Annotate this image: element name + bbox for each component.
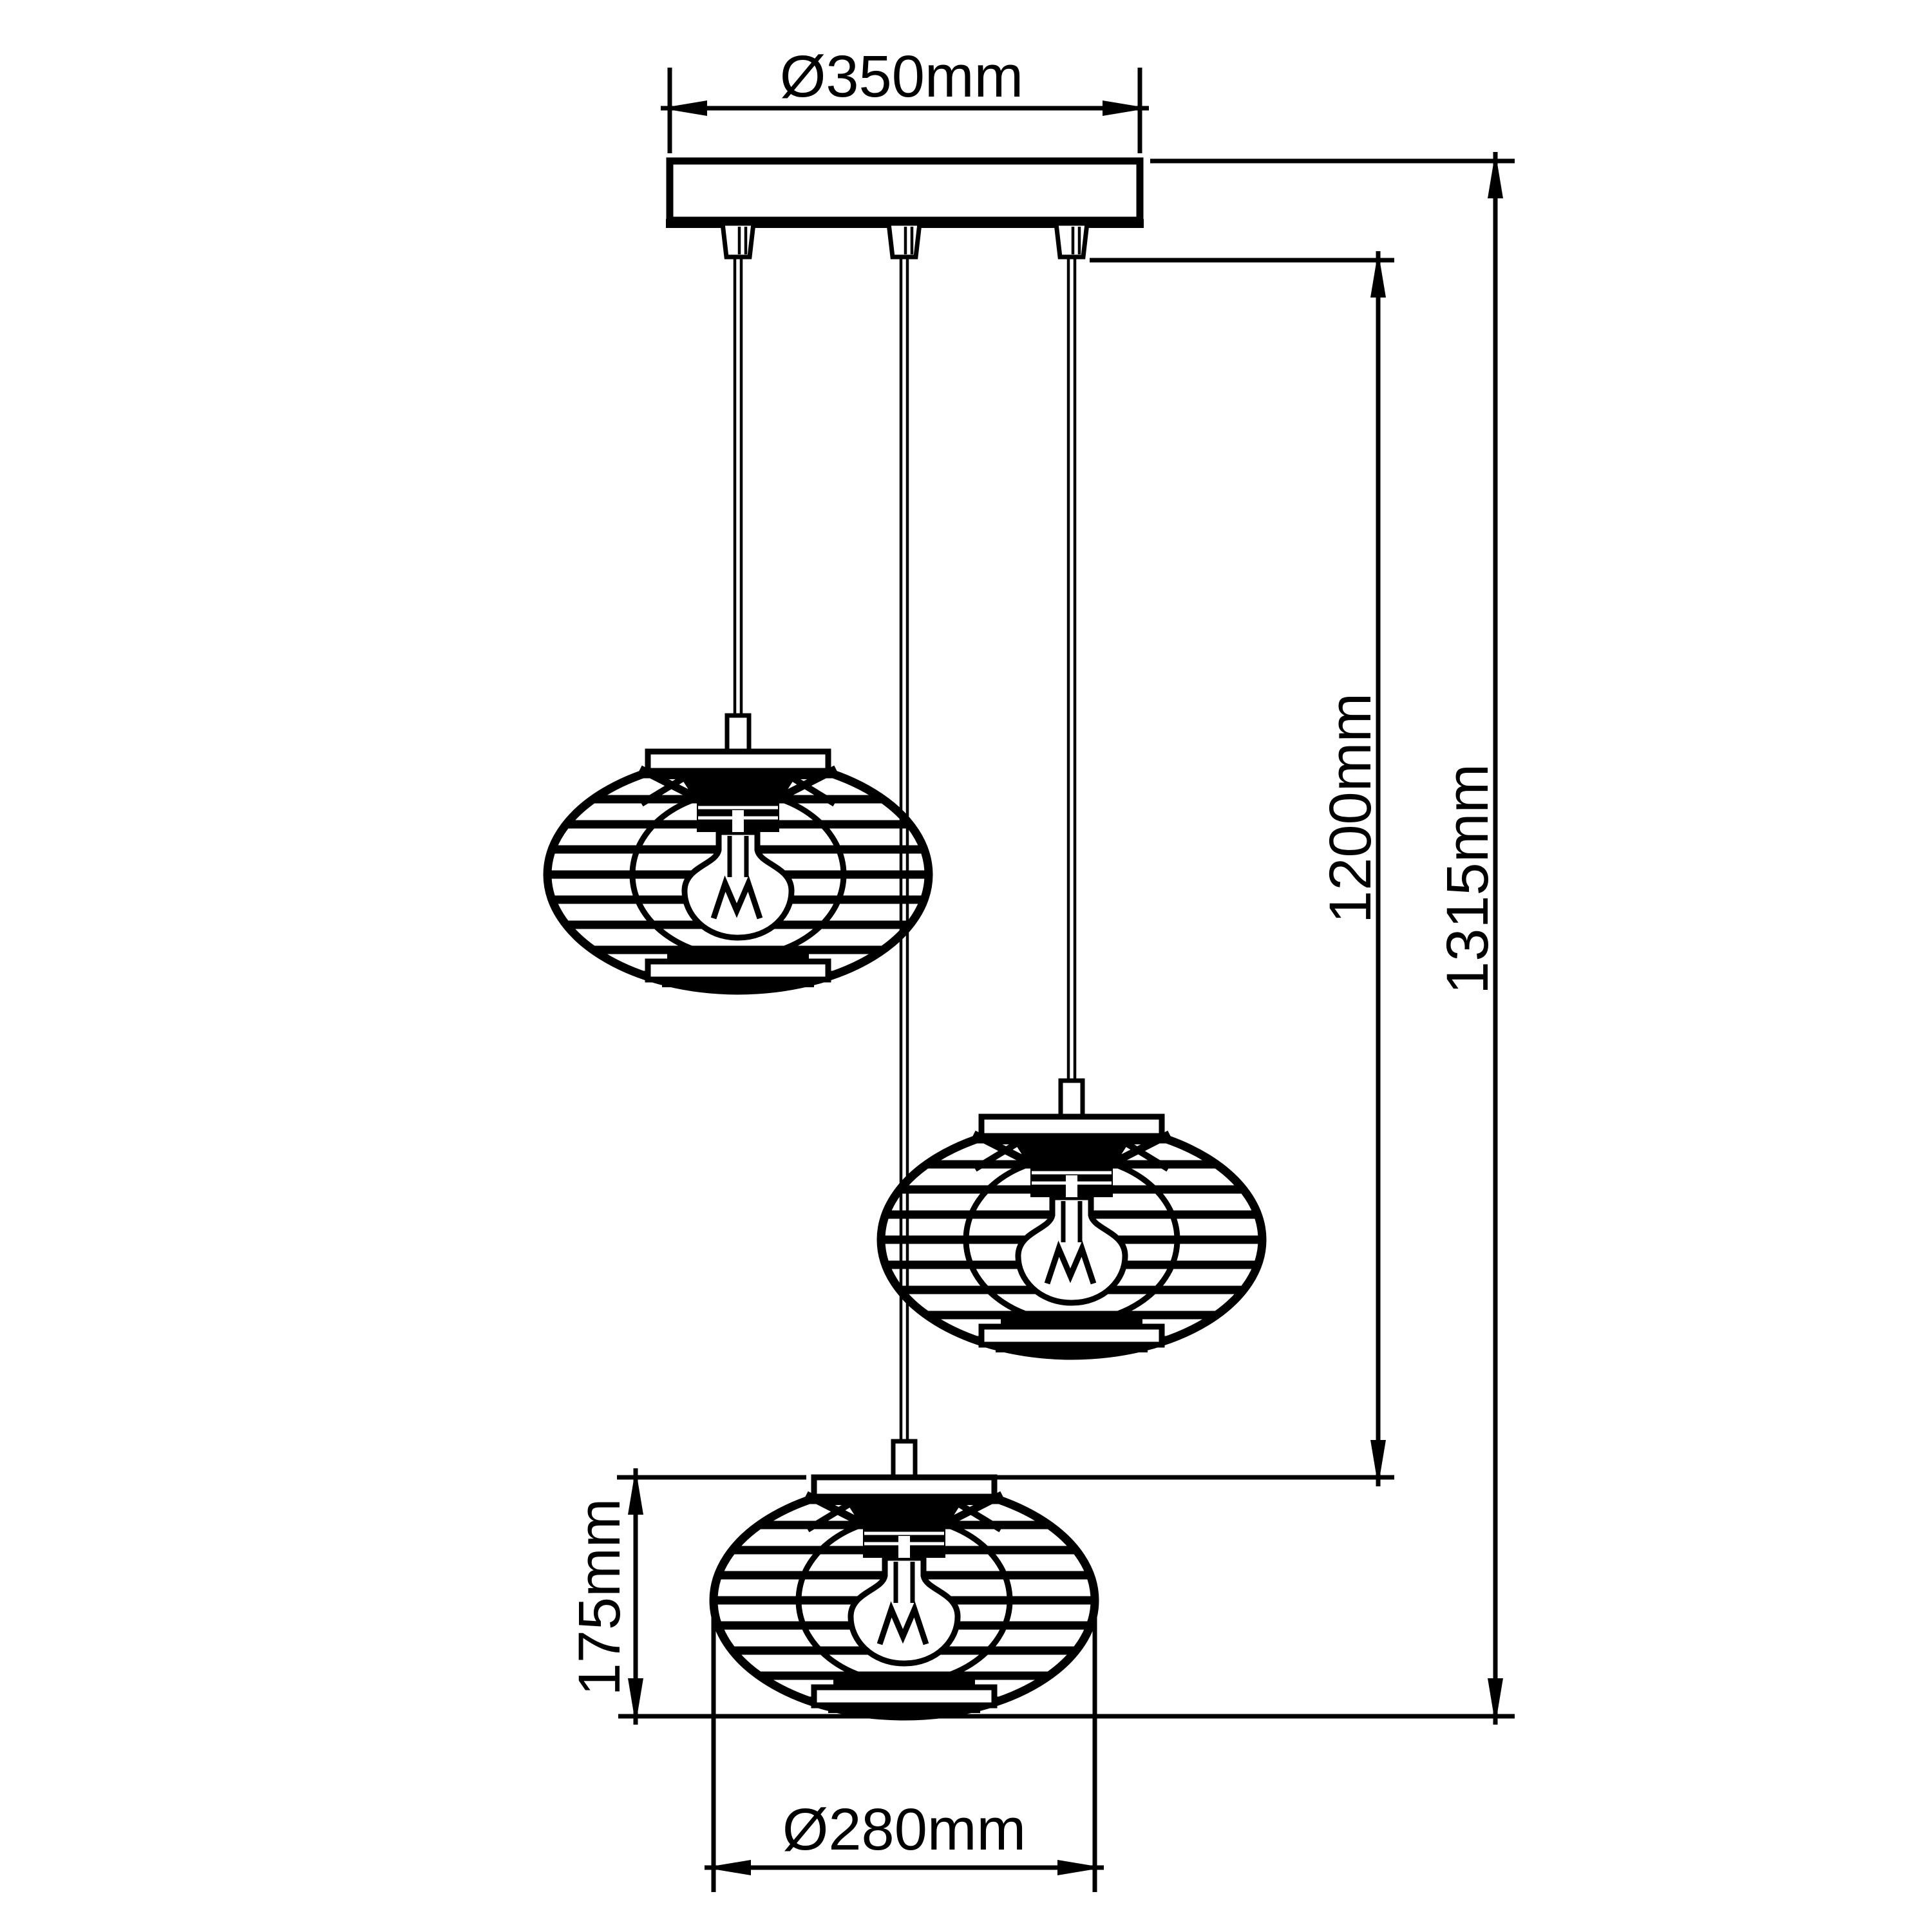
cord-right bbox=[1068, 256, 1075, 1088]
dimension-label-shade-diameter: Ø280mm bbox=[782, 1797, 1026, 1862]
cord-grip bbox=[889, 223, 920, 257]
pendant-shade-top-left bbox=[546, 715, 930, 990]
canopy-plate bbox=[670, 161, 1140, 220]
pendant-shade-bottom bbox=[712, 1441, 1096, 1716]
dimension-label-canopy-diameter: Ø350mm bbox=[780, 44, 1023, 109]
dimension-label-shade-height: 175mm bbox=[567, 1499, 632, 1696]
dimension-shade-height: 175mm bbox=[567, 1468, 643, 1725]
pendant-shade-middle-right bbox=[880, 1081, 1264, 1356]
dimension-label-drop-length: 1200mm bbox=[1318, 693, 1383, 923]
cord-grip bbox=[723, 223, 753, 257]
dimension-total-height: 1315mm bbox=[1435, 152, 1503, 1725]
dimension-label-total-height: 1315mm bbox=[1435, 764, 1501, 994]
technical-drawing-canvas: Ø280mm bbox=[0, 0, 1932, 1932]
cord-grip bbox=[1056, 223, 1087, 257]
dimension-canopy-diameter: Ø350mm bbox=[661, 44, 1149, 153]
dimension-drop-length: 1200mm bbox=[1318, 251, 1386, 1486]
ceiling-canopy bbox=[666, 161, 1144, 257]
cord-left bbox=[735, 256, 741, 722]
